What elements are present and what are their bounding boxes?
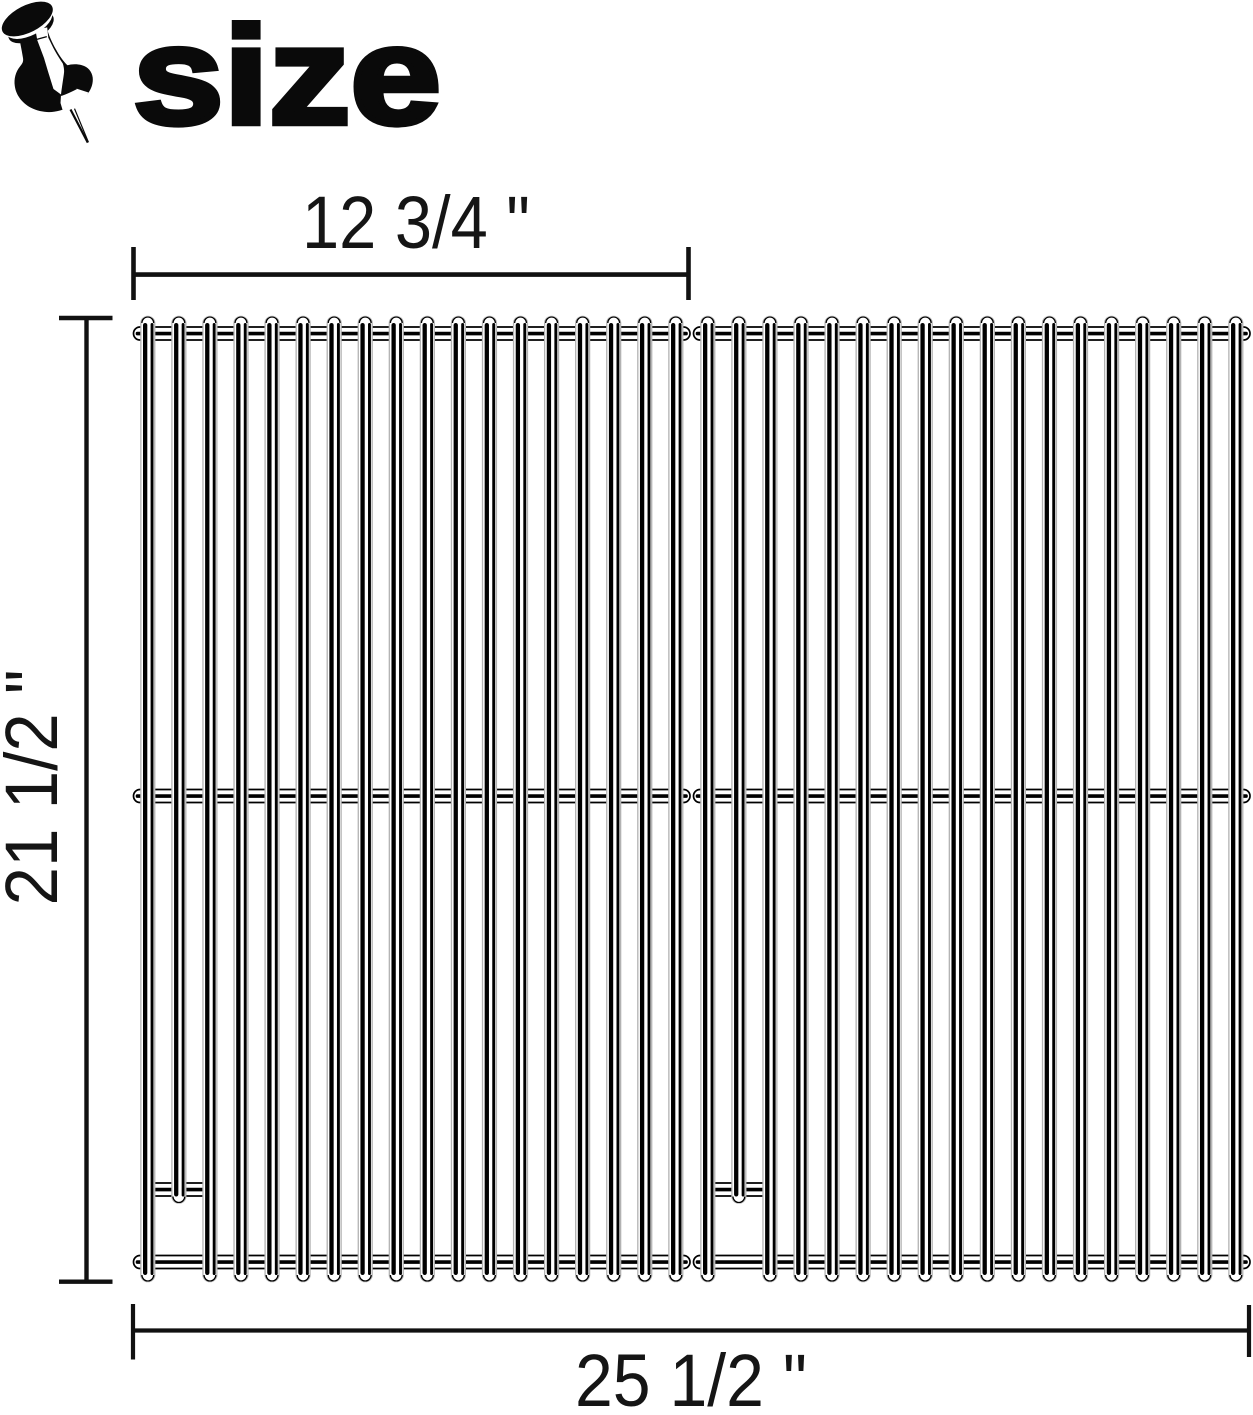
svg-text:size: size <box>133 0 441 154</box>
svg-text:12 3/4 ": 12 3/4 " <box>302 181 530 264</box>
svg-text:25 1/2 ": 25 1/2 " <box>575 1339 807 1410</box>
svg-text:21 1/2 ": 21 1/2 " <box>0 670 73 906</box>
